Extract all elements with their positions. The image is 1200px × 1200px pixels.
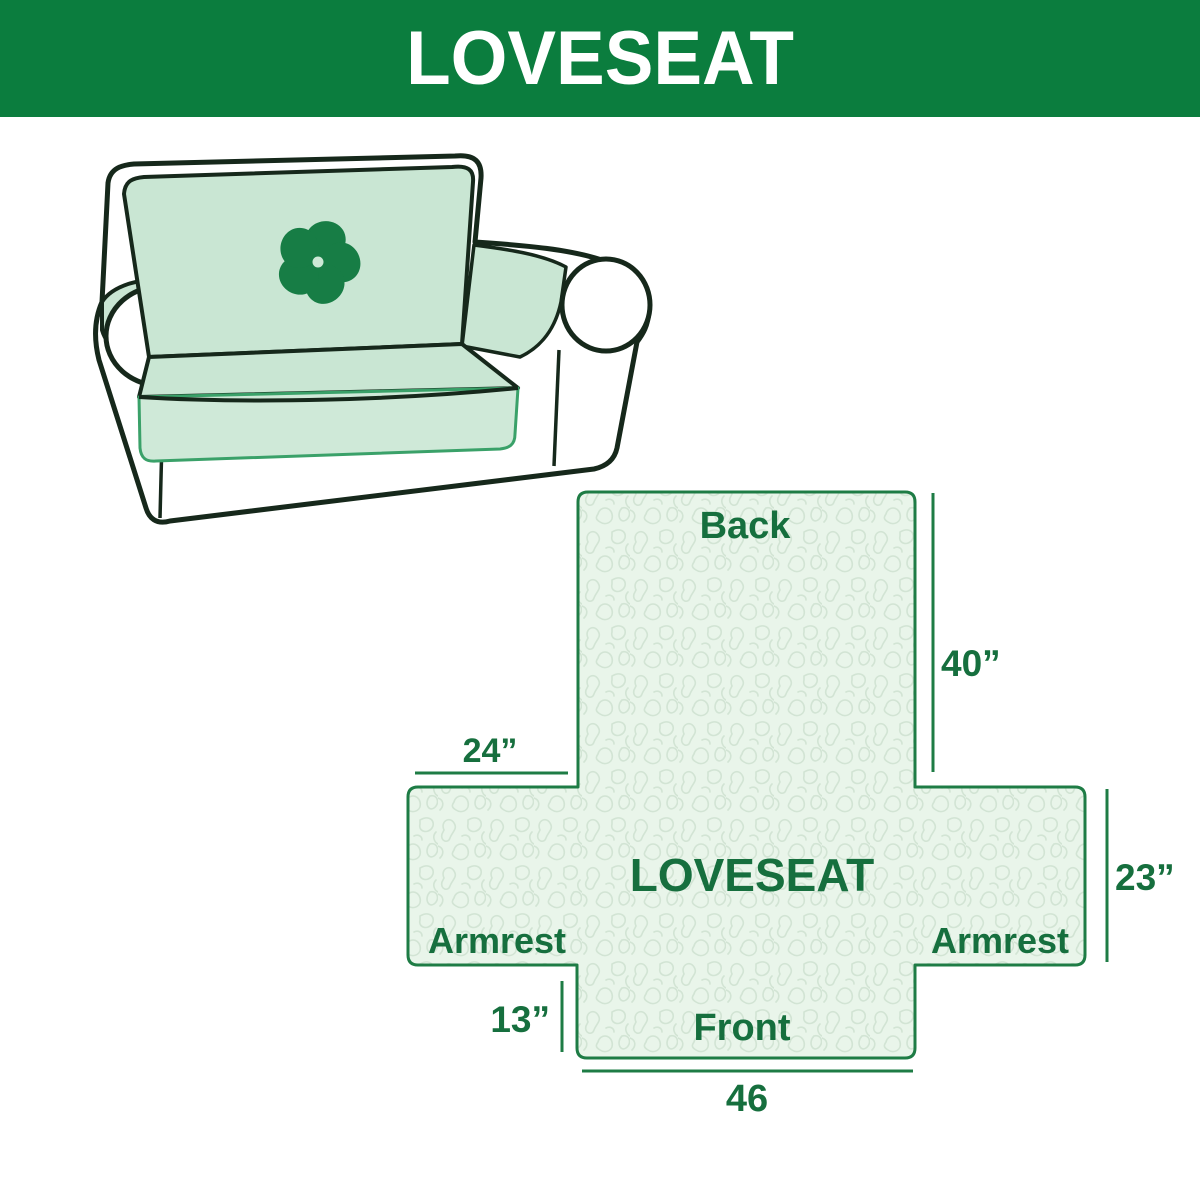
page-title: LOVESEAT <box>406 15 794 102</box>
page: LOVESEAT <box>0 0 1200 1200</box>
front-section-label: Front <box>693 1007 790 1049</box>
dim-back-height-value: 40” <box>941 643 1001 684</box>
back-section-label: Back <box>700 505 792 547</box>
dim-side-height-value: 23” <box>1115 857 1175 898</box>
cover-cross-shape <box>408 492 1085 1058</box>
armrest-right-label: Armrest <box>931 920 1069 961</box>
dim-armrest-top-width-value: 24” <box>463 732 518 770</box>
armrest-left-label: Armrest <box>428 920 566 961</box>
cover-dimension-diagram: Back LOVESEAT Armrest Armrest Front 40” … <box>390 480 1200 1140</box>
header-banner: LOVESEAT <box>0 0 1200 117</box>
dim-front-skirt-height-value: 13” <box>490 999 550 1040</box>
dim-front-width-value: 46 <box>726 1078 768 1120</box>
right-arm-roll <box>562 259 650 351</box>
center-loveseat-label: LOVESEAT <box>630 849 875 901</box>
